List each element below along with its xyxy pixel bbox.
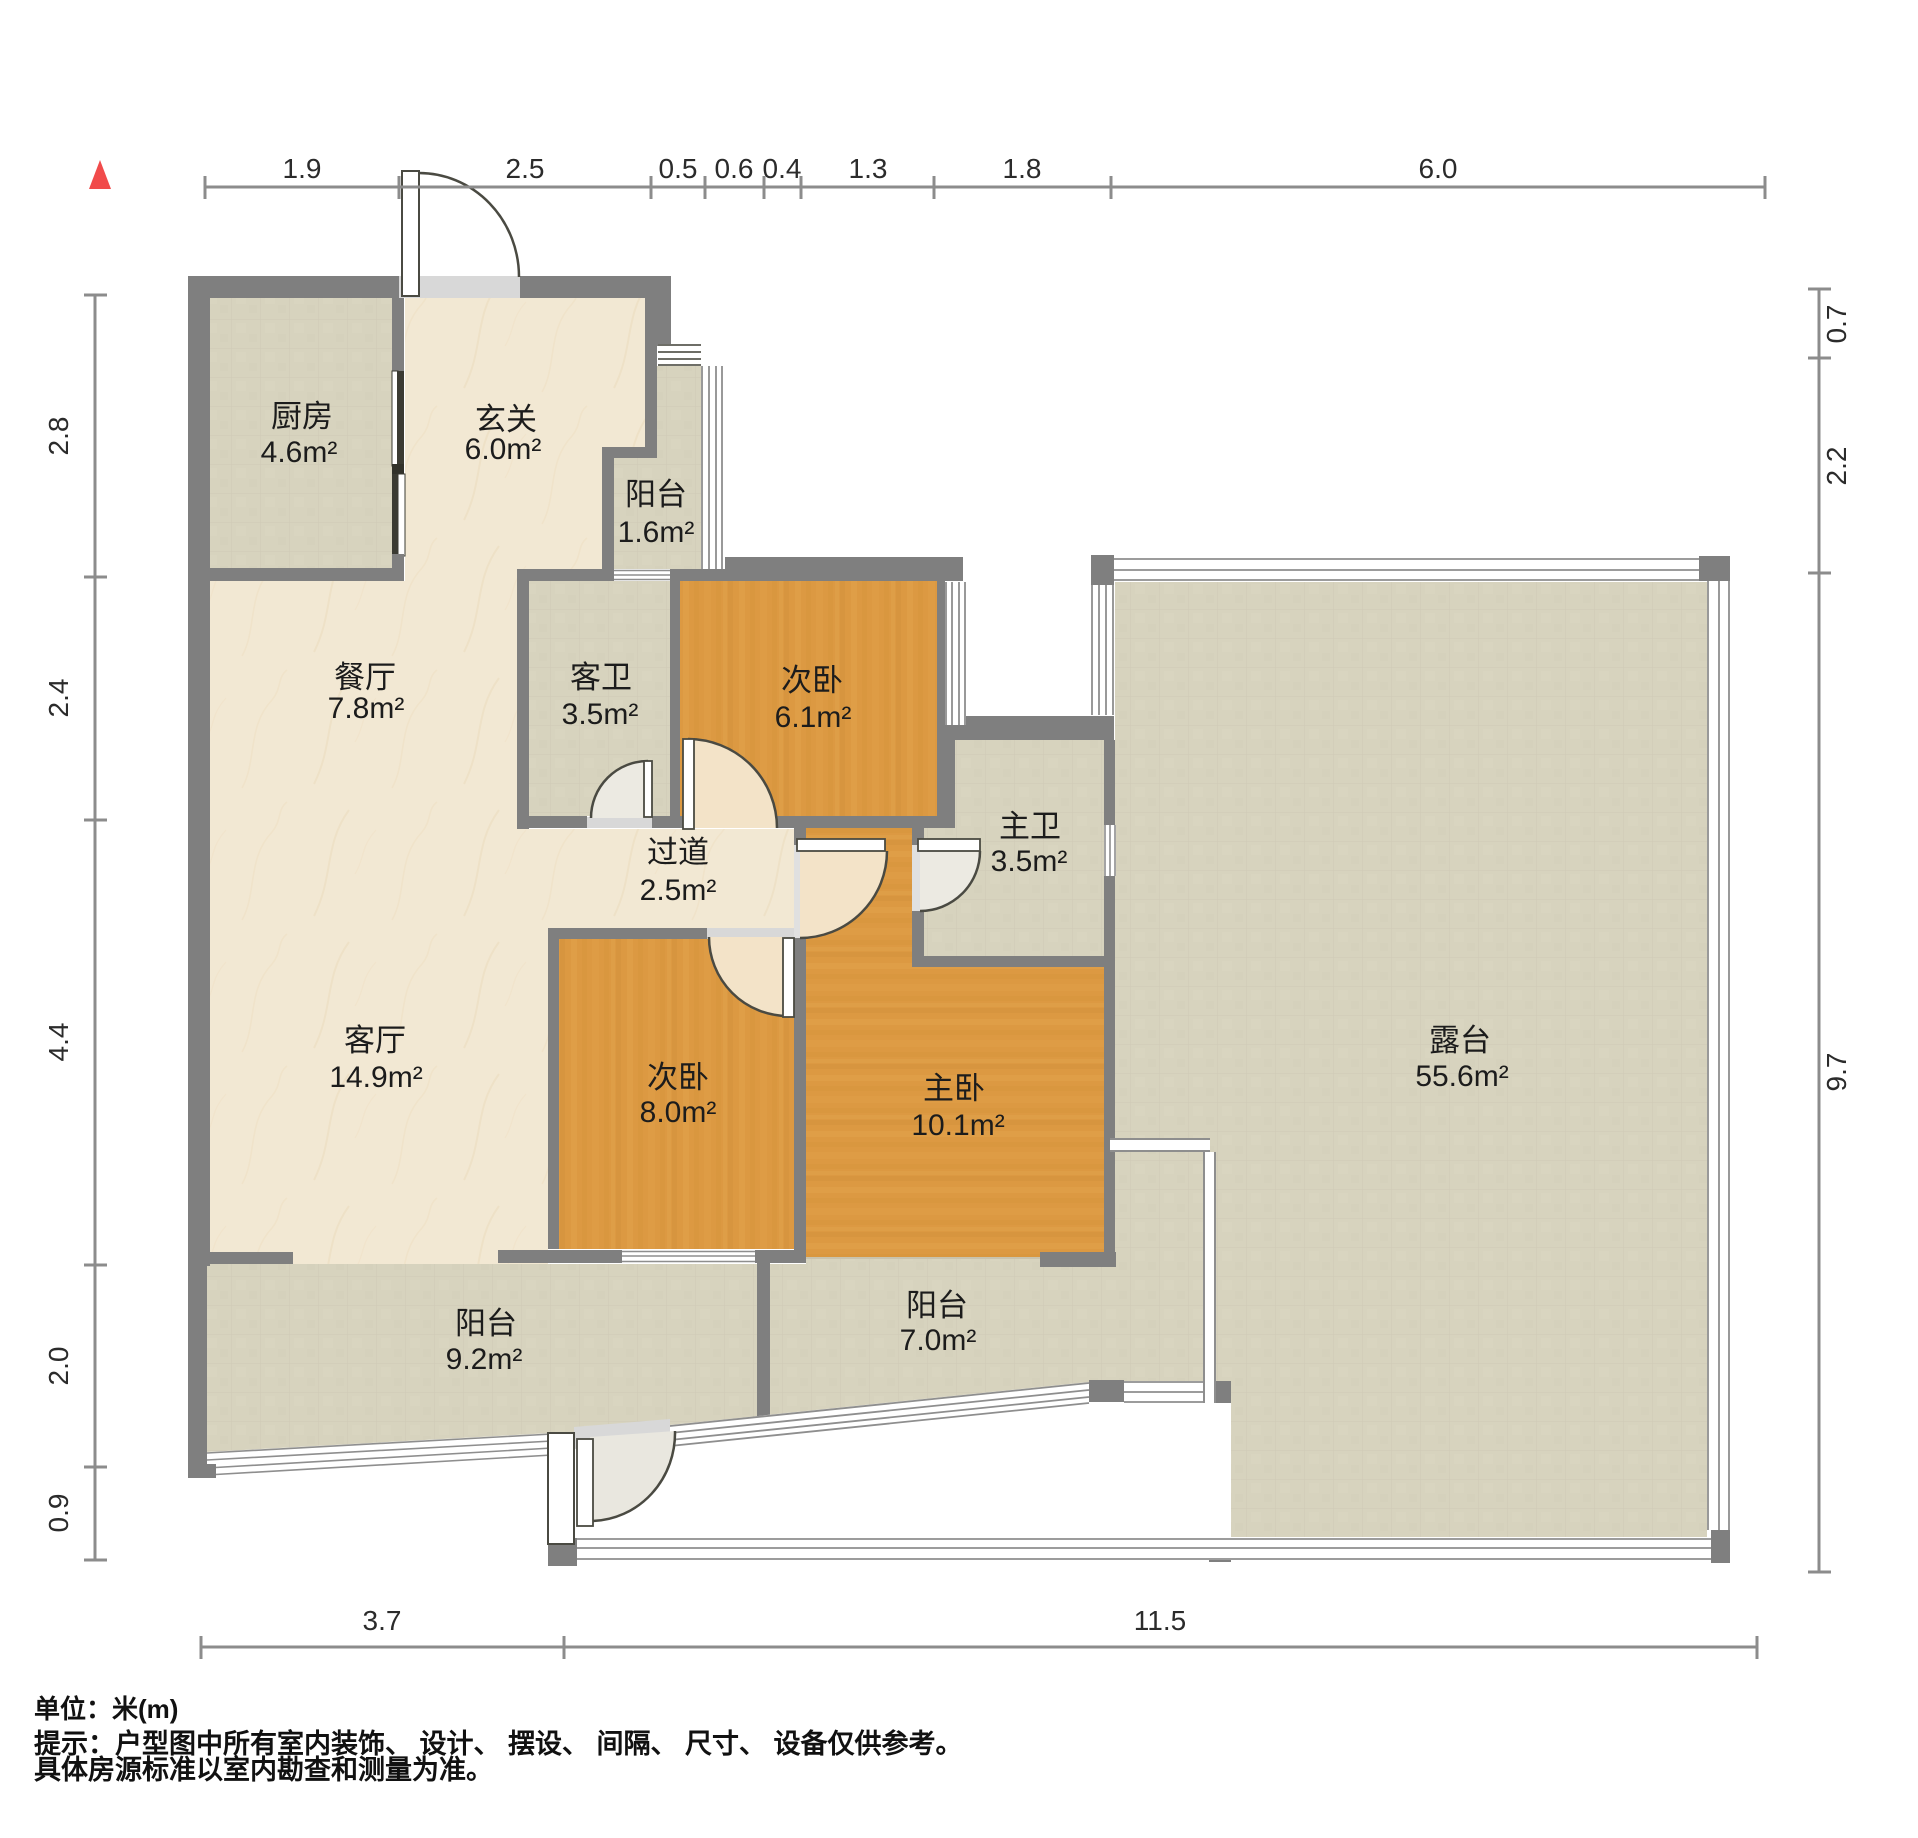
svg-text:客厅: 客厅: [344, 1023, 406, 1058]
svg-text:主卫: 主卫: [999, 809, 1061, 844]
svg-text:阳台: 阳台: [906, 1288, 968, 1323]
svg-text:1.3: 1.3: [849, 153, 888, 184]
svg-text:8.0m²: 8.0m²: [640, 1096, 717, 1129]
svg-text:具体房源标准以室内勘查和测量为准。: 具体房源标准以室内勘查和测量为准。: [34, 1754, 493, 1785]
svg-text:客卫: 客卫: [570, 660, 632, 695]
svg-text:2.4: 2.4: [43, 679, 74, 718]
svg-text:过道: 过道: [647, 835, 709, 870]
svg-text:次卧: 次卧: [647, 1060, 709, 1095]
svg-text:厨房: 厨房: [271, 399, 333, 434]
svg-text:2.5: 2.5: [506, 153, 545, 184]
svg-text:2.8: 2.8: [43, 417, 74, 456]
svg-text:4.4: 4.4: [43, 1023, 74, 1062]
svg-text:2.2: 2.2: [1821, 447, 1852, 486]
svg-text:玄关: 玄关: [475, 402, 537, 437]
svg-text:6.0m²: 6.0m²: [465, 433, 542, 466]
svg-text:7.8m²: 7.8m²: [328, 692, 405, 725]
svg-text:11.5: 11.5: [1134, 1605, 1186, 1636]
svg-text:9.7: 9.7: [1821, 1053, 1852, 1092]
svg-text:餐厅: 餐厅: [334, 660, 396, 695]
svg-text:10.1m²: 10.1m²: [911, 1109, 1004, 1142]
svg-text:1.6m²: 1.6m²: [618, 516, 695, 549]
svg-text:7.0m²: 7.0m²: [900, 1324, 977, 1357]
svg-text:1.8: 1.8: [1003, 153, 1042, 184]
svg-text:0.6: 0.6: [715, 153, 754, 184]
svg-text:0.5: 0.5: [659, 153, 698, 184]
svg-text:主卧: 主卧: [923, 1071, 985, 1106]
svg-text:次卧: 次卧: [781, 663, 843, 698]
svg-text:14.9m²: 14.9m²: [329, 1061, 422, 1094]
svg-text:单位：米(m): 单位：米(m): [34, 1694, 178, 1724]
svg-text:0.9: 0.9: [43, 1494, 74, 1533]
svg-text:3.5m²: 3.5m²: [562, 698, 639, 731]
svg-text:阳台: 阳台: [455, 1306, 517, 1341]
svg-text:3.7: 3.7: [363, 1605, 402, 1636]
svg-text:3.5m²: 3.5m²: [991, 845, 1068, 878]
svg-text:6.0: 6.0: [1419, 153, 1458, 184]
svg-text:55.6m²: 55.6m²: [1415, 1060, 1508, 1093]
svg-text:露台: 露台: [1429, 1023, 1491, 1058]
svg-text:0.7: 0.7: [1821, 305, 1852, 344]
svg-text:1.9: 1.9: [283, 153, 322, 184]
svg-text:2.5m²: 2.5m²: [640, 874, 717, 907]
svg-text:4.6m²: 4.6m²: [261, 436, 338, 469]
svg-text:9.2m²: 9.2m²: [446, 1343, 523, 1376]
svg-text:2.0: 2.0: [43, 1347, 74, 1386]
svg-text:0.4: 0.4: [763, 153, 802, 184]
svg-text:6.1m²: 6.1m²: [775, 701, 852, 734]
svg-text:阳台: 阳台: [625, 477, 687, 512]
